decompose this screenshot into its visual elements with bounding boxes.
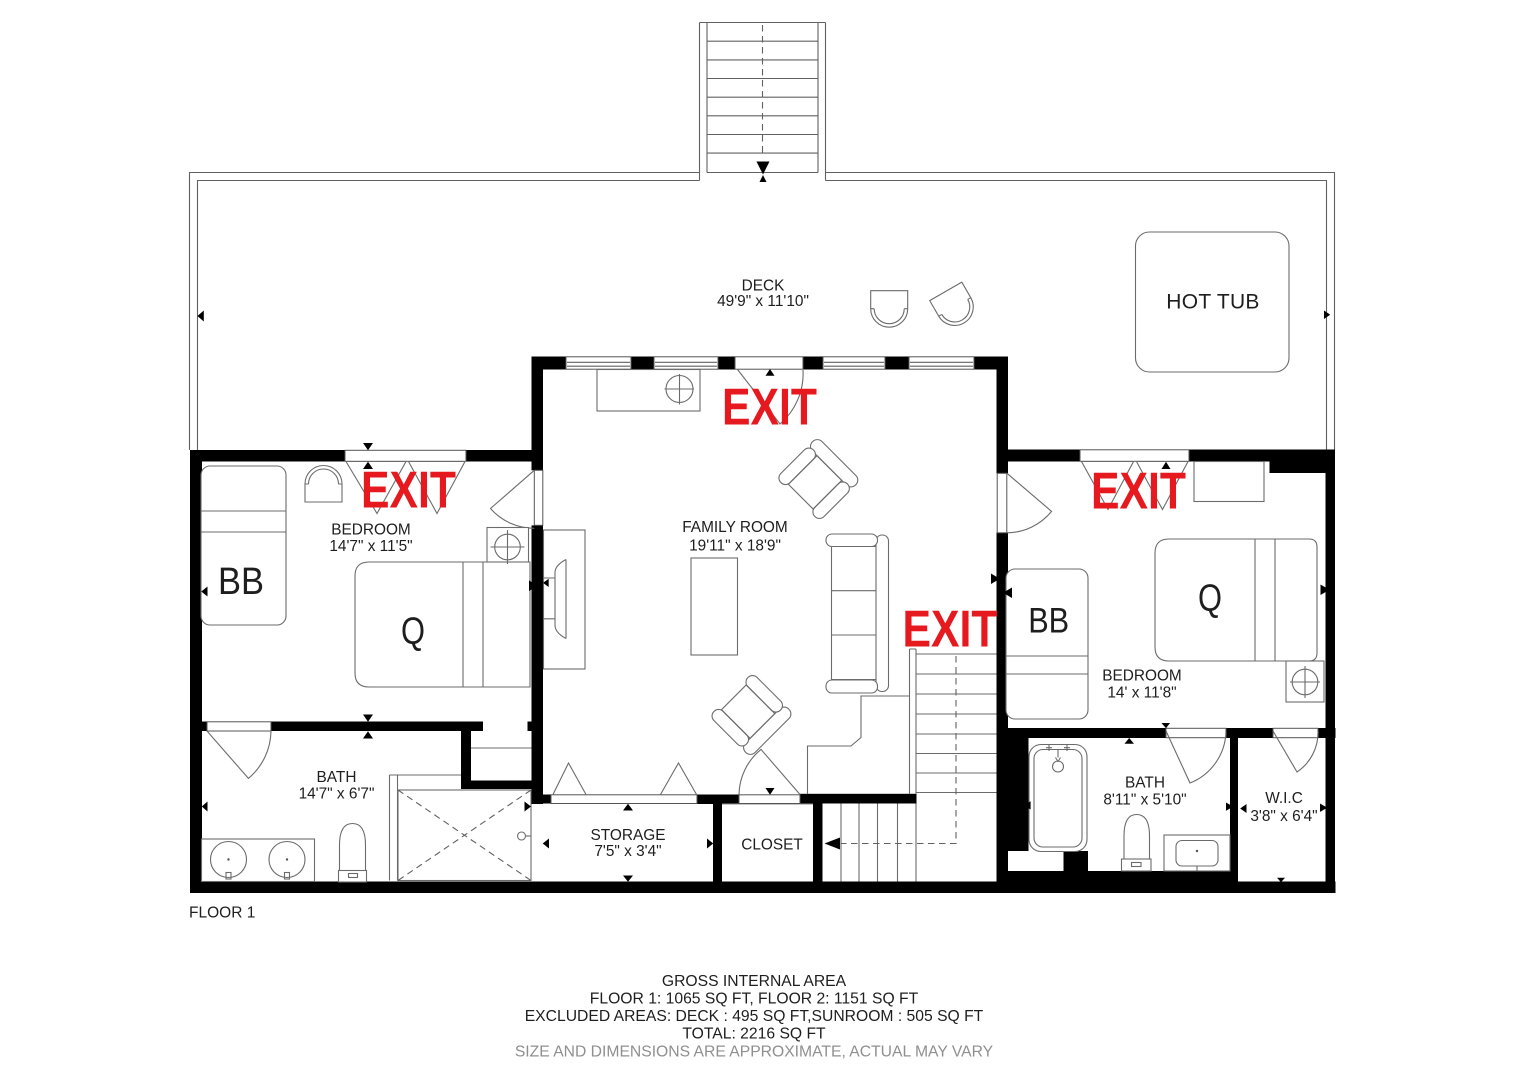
svg-text:BB: BB bbox=[1028, 602, 1069, 641]
svg-text:GROSS INTERNAL AREA: GROSS INTERNAL AREA bbox=[662, 973, 847, 990]
svg-text:19'11" x 18'9": 19'11" x 18'9" bbox=[689, 538, 781, 555]
svg-text:14' x 11'8": 14' x 11'8" bbox=[1107, 685, 1176, 702]
svg-text:HOT TUB: HOT TUB bbox=[1166, 291, 1260, 314]
svg-text:Q: Q bbox=[1198, 578, 1222, 620]
svg-text:FLOOR 1: 1065 SQ FT, FLOOR 2:: FLOOR 1: 1065 SQ FT, FLOOR 2: 1151 SQ FT bbox=[590, 991, 919, 1008]
svg-text:CLOSET: CLOSET bbox=[741, 837, 803, 854]
svg-text:W.I.C: W.I.C bbox=[1265, 790, 1303, 807]
svg-text:49'9" x 11'10": 49'9" x 11'10" bbox=[717, 293, 809, 310]
svg-text:BEDROOM: BEDROOM bbox=[1102, 668, 1182, 685]
svg-text:EXCLUDED AREAS: DECK : 495 SQ: EXCLUDED AREAS: DECK : 495 SQ FT,SUNROOM… bbox=[525, 1008, 984, 1025]
svg-text:BB: BB bbox=[218, 561, 264, 603]
svg-text:3'8" x 6'4": 3'8" x 6'4" bbox=[1250, 808, 1317, 825]
svg-text:7'5" x 3'4": 7'5" x 3'4" bbox=[594, 843, 661, 860]
svg-text:14'7" x 6'7": 14'7" x 6'7" bbox=[299, 786, 375, 803]
svg-text:FAMILY ROOM: FAMILY ROOM bbox=[682, 519, 787, 536]
svg-text:STORAGE: STORAGE bbox=[591, 827, 666, 844]
svg-text:TOTAL: 2216 SQ FT: TOTAL: 2216 SQ FT bbox=[682, 1026, 826, 1043]
svg-text:DECK: DECK bbox=[742, 278, 785, 295]
svg-text:EXIT: EXIT bbox=[1091, 463, 1186, 521]
svg-text:SIZE AND DIMENSIONS ARE APPROX: SIZE AND DIMENSIONS ARE APPROXIMATE, ACT… bbox=[515, 1044, 994, 1061]
svg-text:14'7" x 11'5": 14'7" x 11'5" bbox=[329, 538, 412, 555]
svg-text:EXIT: EXIT bbox=[722, 379, 817, 437]
svg-text:8'11" x 5'10": 8'11" x 5'10" bbox=[1103, 792, 1186, 809]
svg-text:BATH: BATH bbox=[317, 769, 357, 786]
svg-text:FLOOR 1: FLOOR 1 bbox=[189, 905, 255, 922]
svg-text:EXIT: EXIT bbox=[361, 462, 456, 520]
svg-text:Q: Q bbox=[401, 611, 425, 653]
svg-text:BATH: BATH bbox=[1125, 775, 1165, 792]
svg-text:EXIT: EXIT bbox=[903, 601, 998, 659]
svg-text:BEDROOM: BEDROOM bbox=[331, 522, 411, 539]
